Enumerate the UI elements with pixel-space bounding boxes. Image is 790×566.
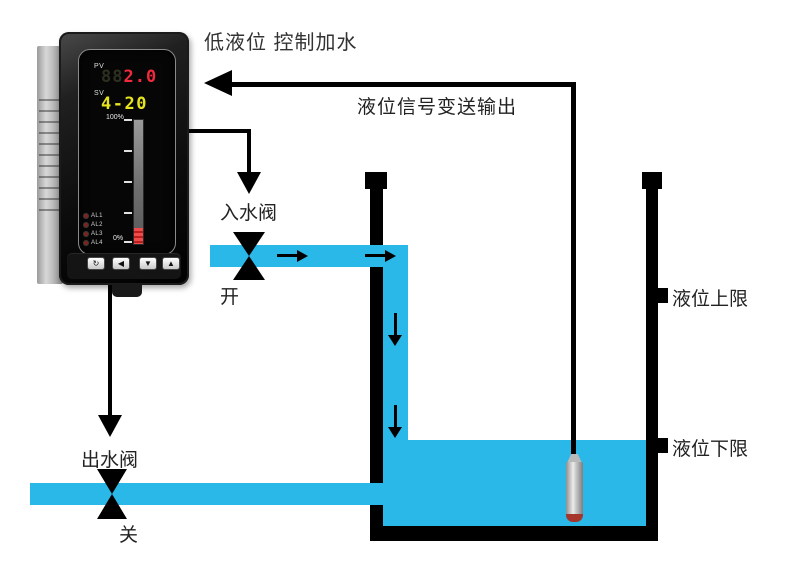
signal-arrowhead-icon <box>204 70 232 96</box>
bargraph-tick <box>124 212 132 214</box>
pv-value: 2.0 <box>123 67 157 87</box>
inlet-control-arrowhead-icon <box>237 172 261 194</box>
outlet-valve-icon <box>97 469 127 494</box>
flow-arrow-right-2-head-icon <box>385 250 396 262</box>
alarm-indicator-al1: AL1 <box>84 212 124 220</box>
bargraph-max-label: 100% <box>106 114 124 121</box>
outlet-control-arrowhead-icon <box>98 415 122 437</box>
bargraph-tick <box>124 181 132 183</box>
bargraph <box>133 119 144 245</box>
tank-left-wall-middle <box>370 267 383 483</box>
alarm-label: AL1 <box>91 213 103 219</box>
down-key-button[interactable]: ▼ <box>139 257 157 270</box>
inlet-valve-state-label: 开 <box>220 282 239 309</box>
alarm-indicator-al3: AL3 <box>84 230 124 238</box>
cycle-key-button[interactable]: ↻ <box>87 257 105 270</box>
flow-arrow-down-2 <box>394 405 397 427</box>
lower-limit-marker <box>656 438 668 453</box>
tank-left-wall-upper <box>370 188 383 245</box>
flow-arrow-down-1-head-icon <box>388 335 402 346</box>
outlet-valve-icon <box>97 494 127 519</box>
signal-output-label: 液位信号变送输出 <box>357 92 517 119</box>
upper-limit-marker <box>656 288 668 303</box>
inlet-valve-icon <box>233 256 265 280</box>
pv-readout: 882.0 <box>101 67 157 87</box>
instrument-vent-slots <box>39 90 59 220</box>
inlet-control-line-horizontal <box>186 129 251 133</box>
tank-right-wall <box>646 188 658 541</box>
signal-line-vertical <box>571 82 576 457</box>
bargraph-tick <box>124 119 132 121</box>
bargraph-tick <box>124 150 132 152</box>
level-sensor-probe <box>566 462 583 515</box>
tank-right-wall-cap <box>642 172 662 189</box>
tank-water-pool <box>383 440 646 526</box>
signal-line-horizontal <box>228 82 576 87</box>
up-key-button[interactable]: ▲ <box>162 257 180 270</box>
inlet-control-line-vertical <box>247 129 251 174</box>
instrument-display: PV 882.0 SV 4-20 100% 0% AL1 <box>78 49 176 255</box>
upper-limit-label: 液位上限 <box>672 284 748 311</box>
alarm-label: AL2 <box>91 222 103 228</box>
flow-arrow-down-1 <box>394 313 397 335</box>
sv-value: 4-20 <box>101 94 148 114</box>
inlet-valve-icon <box>233 232 265 256</box>
pv-ghost-digits: 88 <box>101 67 123 87</box>
outlet-valve-state-label: 关 <box>119 520 138 547</box>
lower-limit-label: 液位下限 <box>672 434 748 461</box>
alarm-led-icon <box>84 223 88 227</box>
alarm-label: AL4 <box>91 240 103 246</box>
flow-arrow-right-1-head-icon <box>297 250 308 262</box>
outlet-valve-label: 出水阀 <box>81 445 138 472</box>
bargraph-fill <box>134 228 143 244</box>
level-controller-instrument: PV 882.0 SV 4-20 100% 0% AL1 <box>37 32 189 300</box>
alarm-led-icon <box>84 241 88 245</box>
flow-arrow-right-1 <box>277 254 297 257</box>
shift-left-key-button[interactable]: ◀ <box>112 257 130 270</box>
instrument-bottom-tab <box>112 284 142 297</box>
flow-arrow-down-2-head-icon <box>388 427 402 438</box>
bargraph-tick <box>124 241 132 243</box>
alarm-led-icon <box>84 232 88 236</box>
level-control-diagram: PV 882.0 SV 4-20 100% 0% AL1 <box>0 0 790 566</box>
tank-left-wall-cap <box>365 172 387 189</box>
outlet-control-line-vertical <box>108 283 112 417</box>
diagram-title: 低液位 控制加水 <box>204 26 358 55</box>
tank-bottom <box>370 526 658 541</box>
alarm-indicator-al2: AL2 <box>84 221 124 229</box>
inlet-valve-label: 入水阀 <box>220 198 277 225</box>
instrument-front-panel: PV 882.0 SV 4-20 100% 0% AL1 <box>59 32 189 285</box>
alarm-label: AL3 <box>91 231 103 237</box>
outlet-pipe-water <box>30 483 383 505</box>
alarm-indicator-al4: AL4 <box>84 239 124 247</box>
flow-arrow-right-2 <box>365 254 385 257</box>
alarm-led-icon <box>84 214 88 218</box>
